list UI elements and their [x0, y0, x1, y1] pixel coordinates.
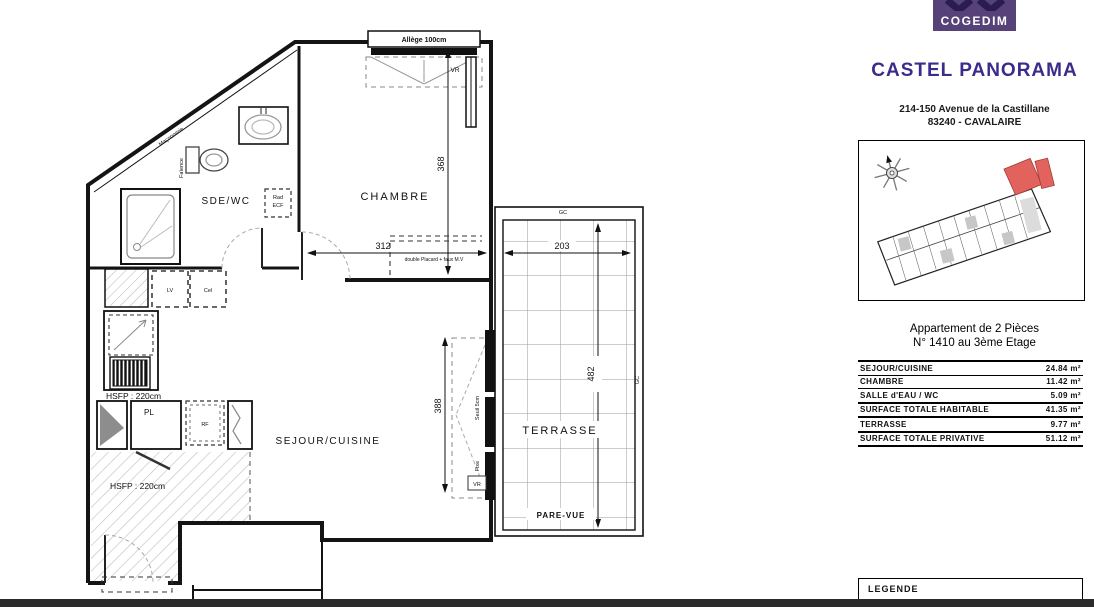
residence-address: 214-150 Avenue de la Castillane 83240 - … — [855, 104, 1094, 129]
table-row: TERRASSE 9.77 m² — [858, 418, 1083, 433]
surface-value: 24.84 m² — [1046, 364, 1083, 373]
sejour-label: SEJOUR/CUISINE — [276, 436, 381, 447]
surface-value: 11.42 m² — [1046, 377, 1083, 386]
rad-label-2: ECF — [273, 203, 285, 209]
surface-label: SEJOUR/CUISINE — [858, 364, 933, 373]
surface-value: 41.35 m² — [1046, 405, 1083, 414]
terrace: 203 482 TERRASSE PARE-VUE GC GC — [495, 207, 643, 536]
kitchen-block: LV Cel — [104, 269, 226, 390]
dim-312: 312 — [375, 241, 390, 251]
surface-table: SEJOUR/CUISINE 24.84 m² CHAMBRE 11.42 m²… — [858, 360, 1083, 447]
placard-note: double Placard + faux M.V — [405, 257, 464, 263]
hsfp-entry-label: HSFP : 220cm — [110, 481, 165, 491]
radiator-box: Rad ECF — [265, 189, 291, 217]
page-bottom-edge — [0, 599, 1094, 607]
seuil-label: Seuil 5cm — [475, 396, 481, 421]
apartment-highlight — [1003, 154, 1054, 196]
apartment-type: Appartement de 2 Pièces — [855, 322, 1094, 336]
vr-top-label: VR — [450, 67, 459, 74]
table-row: SALLE d'EAU / WC 5.09 m² — [858, 389, 1083, 404]
toilet — [186, 147, 228, 173]
floor-plan-drawing: Allège 100cm VR — [0, 0, 860, 607]
dim-482: 482 — [586, 366, 596, 381]
info-panel: COGEDIM CASTEL PANORAMA 214-150 Avenue d… — [855, 0, 1094, 607]
appliance-cel-label: Cel — [204, 288, 212, 294]
surface-label: CHAMBRE — [858, 377, 904, 386]
apartment-heading: Appartement de 2 Pièces N° 1410 au 3ème … — [855, 322, 1094, 350]
site-plan-box — [858, 140, 1085, 301]
window-sill-label: Allège 100cm — [402, 37, 447, 44]
rf-label: RF — [201, 422, 209, 428]
shower — [121, 189, 180, 264]
surface-label: SALLE d'EAU / WC — [858, 391, 939, 400]
chambre-label: CHAMBRE — [360, 191, 429, 203]
sink-vanity — [239, 107, 288, 144]
compass-icon — [870, 151, 914, 195]
bay-window: Seuil 5cm Fixe VR — [452, 330, 496, 500]
address-line-1: 214-150 Avenue de la Castillane — [855, 104, 1094, 117]
cogedim-logo-text: COGEDIM — [941, 14, 1009, 28]
address-line-2: 83240 - CAVALAIRE — [855, 117, 1094, 130]
faience-label: Faïence — [179, 158, 185, 178]
surface-value: 51.12 m² — [1046, 434, 1083, 443]
hsfp-kitchen-label: HSFP : 220cm — [106, 391, 161, 401]
sde-label: SDE/WC — [202, 196, 251, 207]
vr-bay-label: VR — [473, 482, 481, 488]
dim-388: 388 — [433, 398, 443, 413]
table-row: SEJOUR/CUISINE 24.84 m² — [858, 362, 1083, 376]
surface-label: SURFACE TOTALE HABITABLE — [858, 405, 989, 414]
surface-value: 5.09 m² — [1051, 391, 1083, 400]
dim-203: 203 — [554, 241, 569, 251]
apartment-number: N° 1410 au 3ème Etage — [855, 336, 1094, 350]
table-row: SURFACE TOTALE PRIVATIVE 51.12 m² — [858, 433, 1083, 448]
plan-sheet: Allège 100cm VR — [0, 0, 1094, 607]
cogedim-logo: COGEDIM — [933, 0, 1016, 31]
chambre-door — [302, 232, 350, 280]
surface-label: TERRASSE — [858, 420, 907, 429]
gc-top-label: GC — [559, 210, 567, 216]
pare-vue-label: PARE-VUE — [537, 511, 586, 520]
site-plan-drawing — [859, 141, 1081, 297]
chambre-side-window — [466, 57, 476, 127]
dim-368: 368 — [436, 156, 446, 171]
terrasse-label: TERRASSE — [522, 425, 597, 437]
surface-label: SURFACE TOTALE PRIVATIVE — [858, 434, 985, 443]
sde-door — [222, 228, 262, 268]
gc-right-label: GC — [635, 376, 641, 384]
residence-title: CASTEL PANORAMA — [855, 60, 1094, 82]
table-row: CHAMBRE 11.42 m² — [858, 376, 1083, 390]
rad-label-1: Rad — [273, 195, 283, 201]
fixe-label: Fixe — [475, 461, 481, 471]
pl-label: PL — [144, 408, 154, 417]
table-row: SURFACE TOTALE HABITABLE 41.35 m² — [858, 404, 1083, 419]
appliance-lv-label: LV — [167, 288, 174, 294]
cogedim-logo-glyph — [943, 0, 1007, 11]
legend-title: LEGENDE — [868, 584, 1082, 594]
surface-value: 9.77 m² — [1051, 420, 1083, 429]
chambre-top-window: Allège 100cm VR — [366, 31, 482, 87]
entry-hatched-zone — [91, 452, 250, 581]
